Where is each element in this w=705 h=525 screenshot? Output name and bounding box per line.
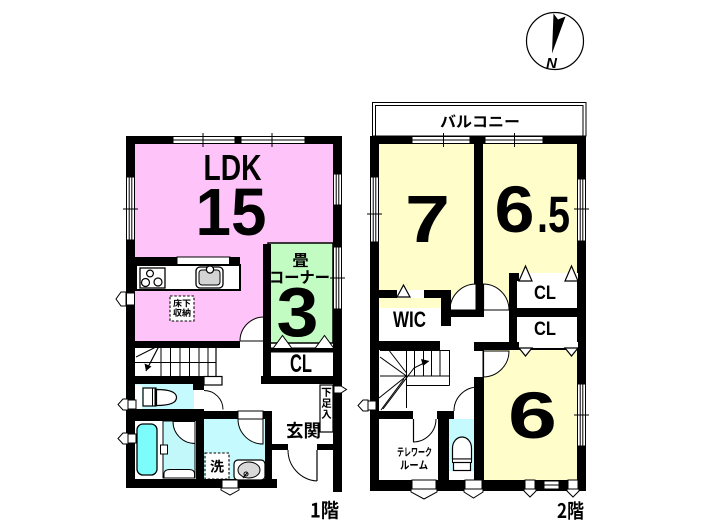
svg-text:7: 7 (405, 182, 450, 257)
svg-text:6: 6 (508, 378, 557, 452)
svg-text:N: N (546, 55, 558, 72)
svg-text:CL: CL (290, 350, 312, 378)
svg-text:.5: .5 (537, 186, 570, 243)
svg-text:15: 15 (196, 175, 267, 250)
svg-text:CL: CL (534, 319, 556, 340)
svg-text:CL: CL (534, 283, 556, 304)
svg-text:WIC: WIC (393, 307, 426, 332)
svg-text:6: 6 (495, 172, 535, 246)
svg-text:3: 3 (277, 273, 319, 351)
